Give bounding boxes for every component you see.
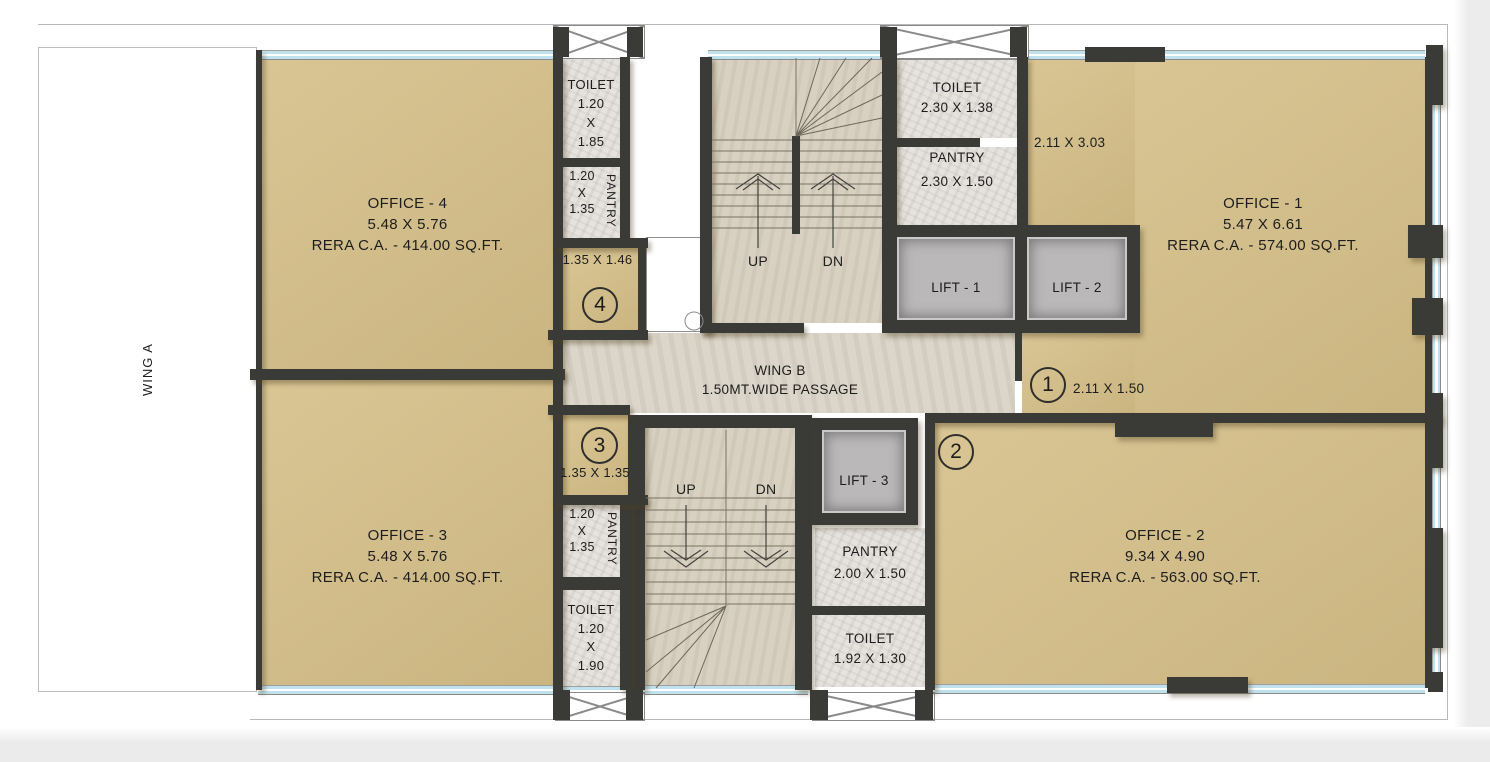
wing-a-block: WING A bbox=[38, 47, 257, 692]
wall-bottom-mid-right bbox=[925, 420, 935, 690]
duct-post bbox=[1010, 27, 1027, 57]
toilet-bm-dims: 1.92 X 1.30 bbox=[815, 649, 925, 669]
duct-post bbox=[627, 27, 643, 57]
wall-stair-bottom-top bbox=[645, 415, 795, 428]
pantry-tm-name: PANTRY bbox=[897, 146, 1017, 170]
wall-stair-top-bottom bbox=[700, 323, 804, 333]
office-2-label: OFFICE - 2 9.34 X 4.90 RERA C.A. - 563.0… bbox=[1015, 525, 1315, 588]
column-right-1 bbox=[1426, 45, 1443, 105]
wall-stair-top-left bbox=[700, 57, 712, 333]
passage-label: WING B 1.50MT.WIDE PASSAGE bbox=[640, 361, 920, 399]
pantry-bottom-mid-label: PANTRY 2.00 X 1.50 bbox=[815, 541, 925, 585]
office-4-rera: RERA C.A. - 414.00 SQ.FT. bbox=[262, 235, 553, 256]
toilet-tl-line: X bbox=[560, 113, 622, 132]
marker-1-number: 1 bbox=[1042, 373, 1054, 397]
lift-3-label: LIFT - 3 bbox=[822, 470, 906, 491]
pantry-tm-dims: 2.30 X 1.50 bbox=[897, 170, 1017, 194]
marker-1: 1 bbox=[1030, 367, 1066, 403]
wall-passage-end-stub bbox=[1015, 333, 1022, 381]
floor-plan-canvas: WING A bbox=[0, 0, 1490, 762]
toilet-bottom-left-label: TOILET 1.20 X 1.90 bbox=[560, 601, 622, 675]
toilet-tm-name: TOILET bbox=[897, 78, 1017, 98]
marker-3: 3 bbox=[581, 427, 618, 464]
column-right-6 bbox=[1428, 672, 1443, 692]
wall-pantry-toilet-bm-divider bbox=[812, 606, 930, 615]
marker-3-dims: 1.35 X 1.35 bbox=[545, 465, 645, 480]
pantry-bm-name: PANTRY bbox=[815, 541, 925, 563]
passage-wing-b: WING B bbox=[640, 361, 920, 380]
office-4-dims: 5.48 X 5.76 bbox=[262, 214, 553, 235]
marker-1-dims: 2.11 X 1.50 bbox=[1073, 378, 1163, 399]
toilet-tm-dims: 2.30 X 1.38 bbox=[897, 98, 1017, 118]
outer-boundary-right bbox=[1447, 24, 1448, 720]
toilet-top-left-label: TOILET 1.20 X 1.85 bbox=[560, 75, 622, 151]
pantry-bl-line: 1.20 bbox=[563, 506, 601, 523]
wall-pantry-tm-right bbox=[1017, 57, 1028, 233]
toilet-bl-line: X bbox=[560, 638, 622, 657]
marker-3-number: 3 bbox=[594, 434, 606, 458]
wall-office2-top-beam bbox=[1115, 413, 1213, 437]
office-2-dims: 9.34 X 4.90 bbox=[1015, 546, 1315, 567]
pantry-top-left-dims: 1.20 X 1.35 bbox=[563, 168, 601, 218]
window-bottom-stairs bbox=[645, 685, 808, 695]
pantry-bl-line: 1.35 bbox=[563, 539, 601, 556]
pantry-bl-line: X bbox=[563, 523, 601, 540]
outer-boundary-top bbox=[38, 24, 1448, 25]
toilet-bottom-mid-label: TOILET 1.92 X 1.30 bbox=[815, 629, 925, 669]
wall-pantry-tl-bottom bbox=[553, 238, 648, 248]
stair-top-up-label: UP bbox=[736, 252, 780, 271]
lift-2-label: LIFT - 2 bbox=[1027, 277, 1127, 298]
office-3-label: OFFICE - 3 5.48 X 5.76 RERA C.A. - 414.0… bbox=[262, 525, 553, 588]
page-margin-right bbox=[1454, 0, 1490, 762]
column-right-2 bbox=[1408, 225, 1443, 258]
office-3-dims: 5.48 X 5.76 bbox=[262, 546, 553, 567]
pantry-bm-dims: 2.00 X 1.50 bbox=[815, 563, 925, 585]
stair-top-dn-label: DN bbox=[811, 252, 855, 271]
office-1-rera: RERA C.A. - 574.00 SQ.FT. bbox=[1113, 235, 1413, 256]
duct-post bbox=[553, 690, 570, 720]
duct-post bbox=[553, 27, 569, 57]
pantry-tl-line: 1.20 bbox=[563, 168, 601, 185]
wing-a-label: WING A bbox=[140, 343, 155, 396]
wall-office1-top-segment bbox=[1085, 47, 1165, 62]
pantry-tl-line: X bbox=[563, 185, 601, 202]
window-top-office4 bbox=[258, 50, 553, 60]
pantry-bottom-left-label: PANTRY bbox=[602, 506, 622, 572]
page-margin-bottom bbox=[0, 727, 1490, 762]
staircase-bottom bbox=[645, 428, 795, 688]
wall-toilet-tl-bottom bbox=[562, 158, 620, 167]
pantry-top-mid-label: PANTRY 2.30 X 1.50 bbox=[897, 146, 1017, 194]
office-2-rera: RERA C.A. - 563.00 SQ.FT. bbox=[1015, 567, 1315, 588]
wall-pantry-toilet-bl-divider bbox=[560, 577, 630, 590]
passage-width-note: 1.50MT.WIDE PASSAGE bbox=[640, 380, 920, 399]
duct-post bbox=[915, 690, 933, 720]
marker-4: 4 bbox=[582, 287, 618, 323]
marker-4-number: 4 bbox=[594, 293, 606, 317]
toilet-top-mid-label: TOILET 2.30 X 1.38 bbox=[897, 78, 1017, 118]
marker-2: 2 bbox=[938, 434, 974, 470]
toilet-bl-line: 1.20 bbox=[560, 620, 622, 639]
stair-bottom-dn-label: DN bbox=[744, 480, 788, 499]
office-4-name: OFFICE - 4 bbox=[262, 193, 553, 214]
office-4-label: OFFICE - 4 5.48 X 5.76 RERA C.A. - 414.0… bbox=[262, 193, 553, 256]
window-bottom-office3 bbox=[258, 685, 553, 695]
pantry-bottom-left-dims: 1.20 X 1.35 bbox=[563, 506, 601, 556]
office-3-rera: RERA C.A. - 414.00 SQ.FT. bbox=[262, 567, 553, 588]
wall-passage-bottom-left bbox=[548, 405, 630, 415]
pantry-top-left-label: PANTRY bbox=[601, 168, 621, 234]
office-1-label: OFFICE - 1 5.47 X 6.61 RERA C.A. - 574.0… bbox=[1113, 193, 1413, 256]
office-2-name: OFFICE - 2 bbox=[1015, 525, 1315, 546]
wall-service-col-left bbox=[553, 57, 563, 690]
niche-dims-label: 2.11 X 3.03 bbox=[1034, 132, 1144, 153]
toilet-tl-line: 1.20 bbox=[560, 94, 622, 113]
duct-post bbox=[880, 27, 897, 57]
marker-2-number: 2 bbox=[950, 440, 962, 464]
window-top-stairs bbox=[708, 50, 882, 60]
duct-room bbox=[646, 237, 704, 332]
marker-4-dims: 1.35 X 1.46 bbox=[545, 252, 650, 267]
stair-bottom-up-label: UP bbox=[664, 480, 708, 499]
toilet-bm-name: TOILET bbox=[815, 629, 925, 649]
column-right-3 bbox=[1412, 298, 1443, 335]
staircase-top bbox=[712, 57, 882, 323]
toilet-tl-line: TOILET bbox=[560, 75, 622, 94]
wall-office2-bottom-segment bbox=[1167, 677, 1248, 693]
wall-pantry-bl-top bbox=[553, 495, 648, 505]
duct-hatch-top-right bbox=[880, 25, 1029, 59]
lift-1-label: LIFT - 1 bbox=[897, 277, 1015, 298]
duct-post bbox=[810, 690, 828, 720]
pantry-tl-line: 1.35 bbox=[563, 201, 601, 218]
wall-passage-top-left bbox=[548, 330, 648, 340]
toilet-tl-line: 1.85 bbox=[560, 132, 622, 151]
column-right-5 bbox=[1426, 528, 1443, 648]
toilet-bl-line: TOILET bbox=[560, 601, 622, 620]
office-1-dims: 5.47 X 6.61 bbox=[1113, 214, 1413, 235]
office-3-name: OFFICE - 3 bbox=[262, 525, 553, 546]
toilet-bl-line: 1.90 bbox=[560, 657, 622, 676]
column-right-4 bbox=[1426, 393, 1443, 468]
duct-post bbox=[626, 690, 643, 720]
office-1-name: OFFICE - 1 bbox=[1113, 193, 1413, 214]
wall-office4-office3-divider bbox=[250, 369, 565, 380]
